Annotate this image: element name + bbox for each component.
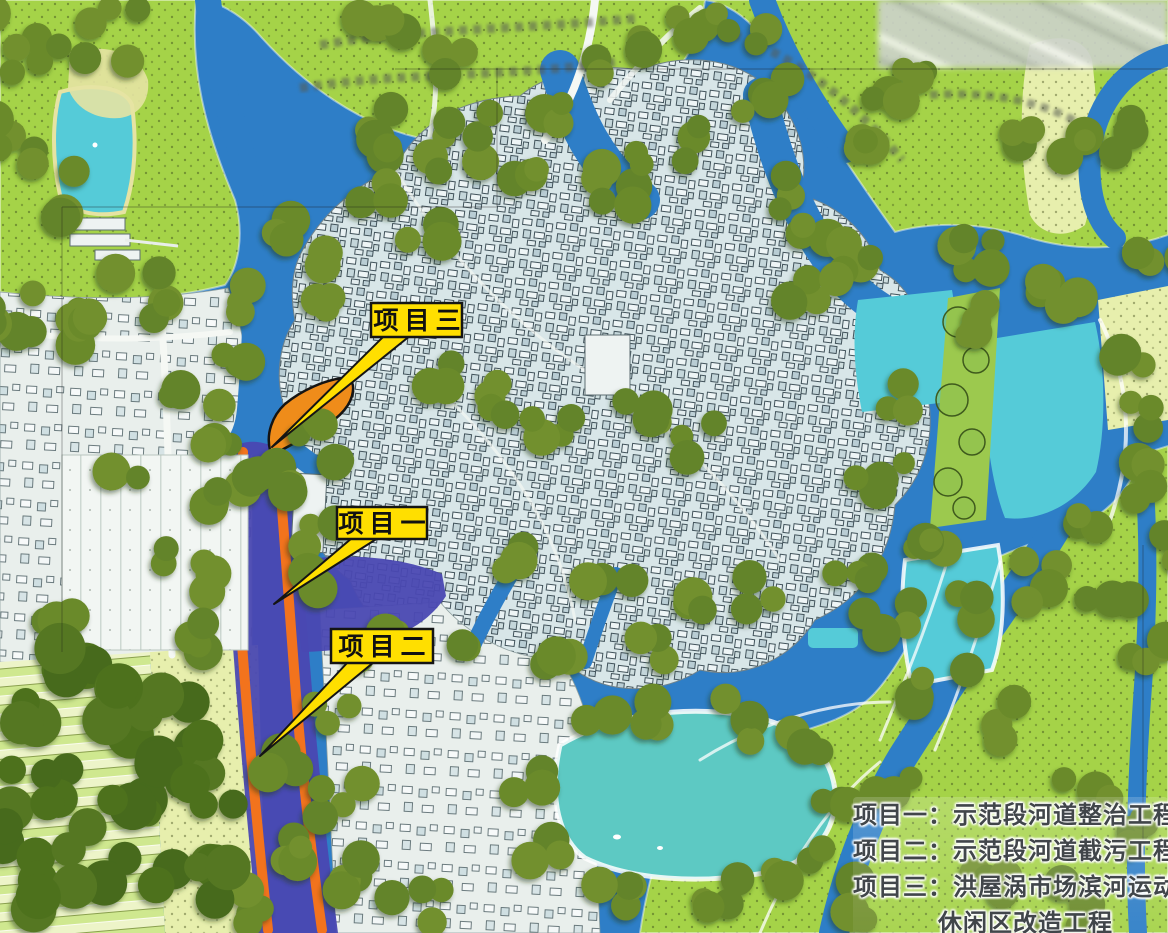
tree-canopy — [187, 608, 219, 640]
tree-canopy — [569, 562, 607, 600]
tree-canopy — [395, 227, 421, 253]
legend-row-project-3: 项目三：洪屋涡市场滨河运动 — [853, 869, 1168, 905]
tree-canopy — [960, 581, 994, 615]
tree-canopy — [219, 790, 248, 819]
tree-canopy — [532, 774, 558, 800]
tree-canopy — [408, 876, 436, 904]
tree-canopy — [737, 727, 764, 754]
small-pond — [808, 628, 858, 648]
tree-canopy — [855, 566, 882, 593]
tree-canopy — [853, 129, 878, 154]
tree-canopy — [999, 119, 1026, 146]
tree-canopy — [790, 213, 815, 238]
tree-canopy — [303, 799, 338, 834]
tree-canopy — [557, 404, 585, 432]
tree-canopy — [203, 477, 232, 506]
tree-canopy — [96, 254, 135, 293]
tree-canopy — [519, 406, 545, 432]
site-plan-map: 项目三 项目一 项目二 项目一：示范段河道整治工程 项目二：示范段河道截污工程 … — [0, 0, 1168, 933]
plaza-building — [585, 335, 630, 395]
tree-canopy — [73, 300, 107, 334]
tree-canopy — [583, 149, 621, 187]
tree-canopy — [771, 161, 801, 191]
tree-canopy — [139, 673, 185, 719]
tree-canopy — [911, 667, 934, 690]
tree-canopy — [919, 528, 943, 552]
tree-canopy — [203, 389, 236, 422]
legend-row-project-1: 项目一：示范段河道整治工程 — [853, 797, 1168, 833]
tree-canopy — [30, 786, 64, 820]
tree-canopy — [630, 709, 661, 740]
tree-canopy — [59, 156, 90, 187]
tree-canopy — [373, 133, 402, 162]
topright-aerial-strip — [878, 0, 1168, 68]
tree-canopy — [373, 183, 408, 218]
tree-canopy — [308, 775, 335, 802]
tree-canopy — [589, 188, 616, 215]
tree-canopy — [17, 148, 49, 180]
tree-canopy — [701, 410, 727, 436]
tree-canopy — [317, 444, 354, 481]
tree-canopy — [752, 81, 789, 118]
tree-canopy — [731, 593, 762, 624]
legend-row-project-2: 项目二：示范段河道截污工程 — [853, 833, 1168, 869]
tree-canopy — [447, 629, 479, 661]
tree-canopy — [111, 45, 144, 78]
boat — [613, 835, 621, 840]
tree-canopy — [537, 636, 576, 675]
tree-canopy — [126, 466, 150, 490]
tree-canopy — [31, 759, 62, 790]
tree-canopy — [154, 536, 179, 561]
tree-canopy — [1113, 114, 1148, 149]
tree-canopy — [861, 87, 885, 111]
tree-canopy — [425, 158, 452, 185]
tree-canopy — [1102, 334, 1142, 374]
tree-canopy — [429, 58, 461, 90]
tree-canopy — [769, 197, 792, 220]
tree-canopy — [981, 229, 1004, 252]
tree-canopy — [893, 396, 923, 426]
tree-canopy — [1066, 503, 1091, 528]
tree-canopy — [161, 370, 200, 409]
tree-canopy — [1122, 237, 1154, 269]
legend: 项目一：示范段河道整治工程 项目二：示范段河道截污工程 项目三：洪屋涡市场滨河运… — [853, 797, 1168, 933]
tree-canopy — [374, 880, 409, 915]
tree-canopy — [670, 440, 705, 475]
tree-canopy — [764, 861, 804, 901]
tree-canopy — [248, 753, 288, 793]
tree-canopy — [344, 766, 380, 802]
tree-canopy — [710, 684, 740, 714]
tree-canopy — [687, 115, 711, 139]
tree-canopy — [888, 368, 919, 399]
tree-canopy — [1011, 586, 1043, 618]
callout-project-3-label: 项目三 — [373, 306, 466, 335]
tree-canopy — [997, 685, 1031, 719]
tree-canopy — [1074, 586, 1100, 612]
tree-canopy — [772, 284, 807, 319]
tree-canopy — [212, 343, 236, 367]
tree-canopy — [491, 400, 520, 429]
tree-canopy — [96, 666, 139, 709]
tree-canopy — [41, 198, 80, 237]
tree-canopy — [740, 706, 763, 729]
tree-canopy — [586, 59, 613, 86]
tree-canopy — [143, 256, 176, 289]
tree-canopy — [806, 738, 833, 765]
pier-building — [70, 234, 130, 246]
tree-canopy — [138, 867, 175, 904]
tree-canopy — [34, 623, 85, 674]
tree-canopy — [546, 841, 575, 870]
tree-canopy — [581, 867, 618, 904]
tree-canopy — [170, 763, 210, 803]
tree-canopy — [191, 427, 227, 463]
tree-canopy — [672, 147, 699, 174]
tree-canopy — [428, 368, 464, 404]
tree-canopy — [476, 100, 503, 127]
tree-canopy — [423, 222, 462, 261]
tree-canopy — [20, 281, 46, 307]
tree-canopy — [524, 157, 549, 182]
tree-canopy — [342, 840, 380, 878]
tree-canopy — [317, 283, 346, 312]
legend-row-project-3-cont: 休闲区改造工程 — [853, 905, 1168, 933]
tree-canopy — [630, 152, 654, 176]
tree-canopy — [688, 596, 717, 625]
tree-canopy — [52, 832, 86, 866]
tree-canopy — [614, 187, 651, 224]
tree-canopy — [596, 706, 620, 730]
tree-canopy — [345, 186, 377, 218]
tree-canopy — [1074, 129, 1096, 151]
tree-canopy — [268, 472, 307, 511]
tree-canopy — [500, 542, 538, 580]
tree-canopy — [625, 622, 658, 655]
callout-project-2-label: 项目二 — [338, 632, 431, 661]
tree-canopy — [182, 720, 223, 761]
tree-canopy — [809, 835, 836, 862]
tree-canopy — [962, 306, 992, 336]
tree-canopy — [693, 891, 725, 923]
tree-canopy — [205, 845, 251, 891]
tree-canopy — [289, 836, 312, 859]
tree-canopy — [900, 767, 923, 790]
tree-canopy — [862, 614, 900, 652]
tree-canopy — [760, 586, 785, 611]
tree-canopy — [819, 262, 853, 296]
tree-canopy — [270, 223, 304, 257]
tree-canopy — [717, 19, 740, 42]
tree-canopy — [731, 100, 754, 123]
tree-canopy — [191, 550, 218, 577]
map-canvas: 项目三 项目一 项目二 — [0, 0, 1168, 933]
tree-canopy — [615, 872, 643, 900]
tree-canopy — [949, 224, 978, 253]
tree-canopy — [153, 289, 181, 317]
tree-canopy — [1052, 767, 1076, 791]
tree-canopy — [615, 564, 648, 597]
tree-canopy — [3, 34, 30, 61]
tree-canopy — [1009, 547, 1039, 577]
tree-canopy — [232, 458, 270, 496]
tree-canopy — [511, 842, 549, 880]
tree-canopy — [1138, 395, 1164, 421]
tree-canopy — [858, 245, 883, 270]
tree-canopy — [625, 31, 662, 68]
tree-canopy — [226, 298, 255, 327]
tree-canopy — [16, 874, 61, 919]
tree-canopy — [308, 235, 343, 270]
tree-canopy — [0, 59, 25, 84]
tree-canopy — [745, 32, 768, 55]
tree-canopy — [93, 453, 131, 491]
tree-canopy — [0, 701, 43, 744]
tree-canopy — [374, 92, 408, 126]
boat — [657, 846, 663, 850]
lake-marker — [93, 143, 98, 148]
tree-canopy — [1045, 287, 1082, 324]
tree-canopy — [883, 83, 920, 120]
tree-canopy — [972, 249, 1010, 287]
tree-canopy — [550, 92, 573, 115]
tree-canopy — [69, 42, 101, 74]
tree-canopy — [1134, 470, 1167, 503]
tree-canopy — [315, 711, 340, 736]
tree-canopy — [950, 653, 985, 688]
tree-canopy — [341, 0, 378, 37]
callout-project-1-label: 项目一 — [338, 509, 431, 538]
tree-canopy — [822, 560, 848, 586]
tree-canopy — [499, 777, 529, 807]
tree-canopy — [337, 694, 362, 719]
tree-canopy — [844, 465, 869, 490]
tree-canopy — [97, 785, 128, 816]
tree-canopy — [732, 560, 766, 594]
tree-canopy — [46, 34, 72, 60]
tree-canopy — [633, 400, 670, 437]
tree-canopy — [433, 107, 465, 139]
